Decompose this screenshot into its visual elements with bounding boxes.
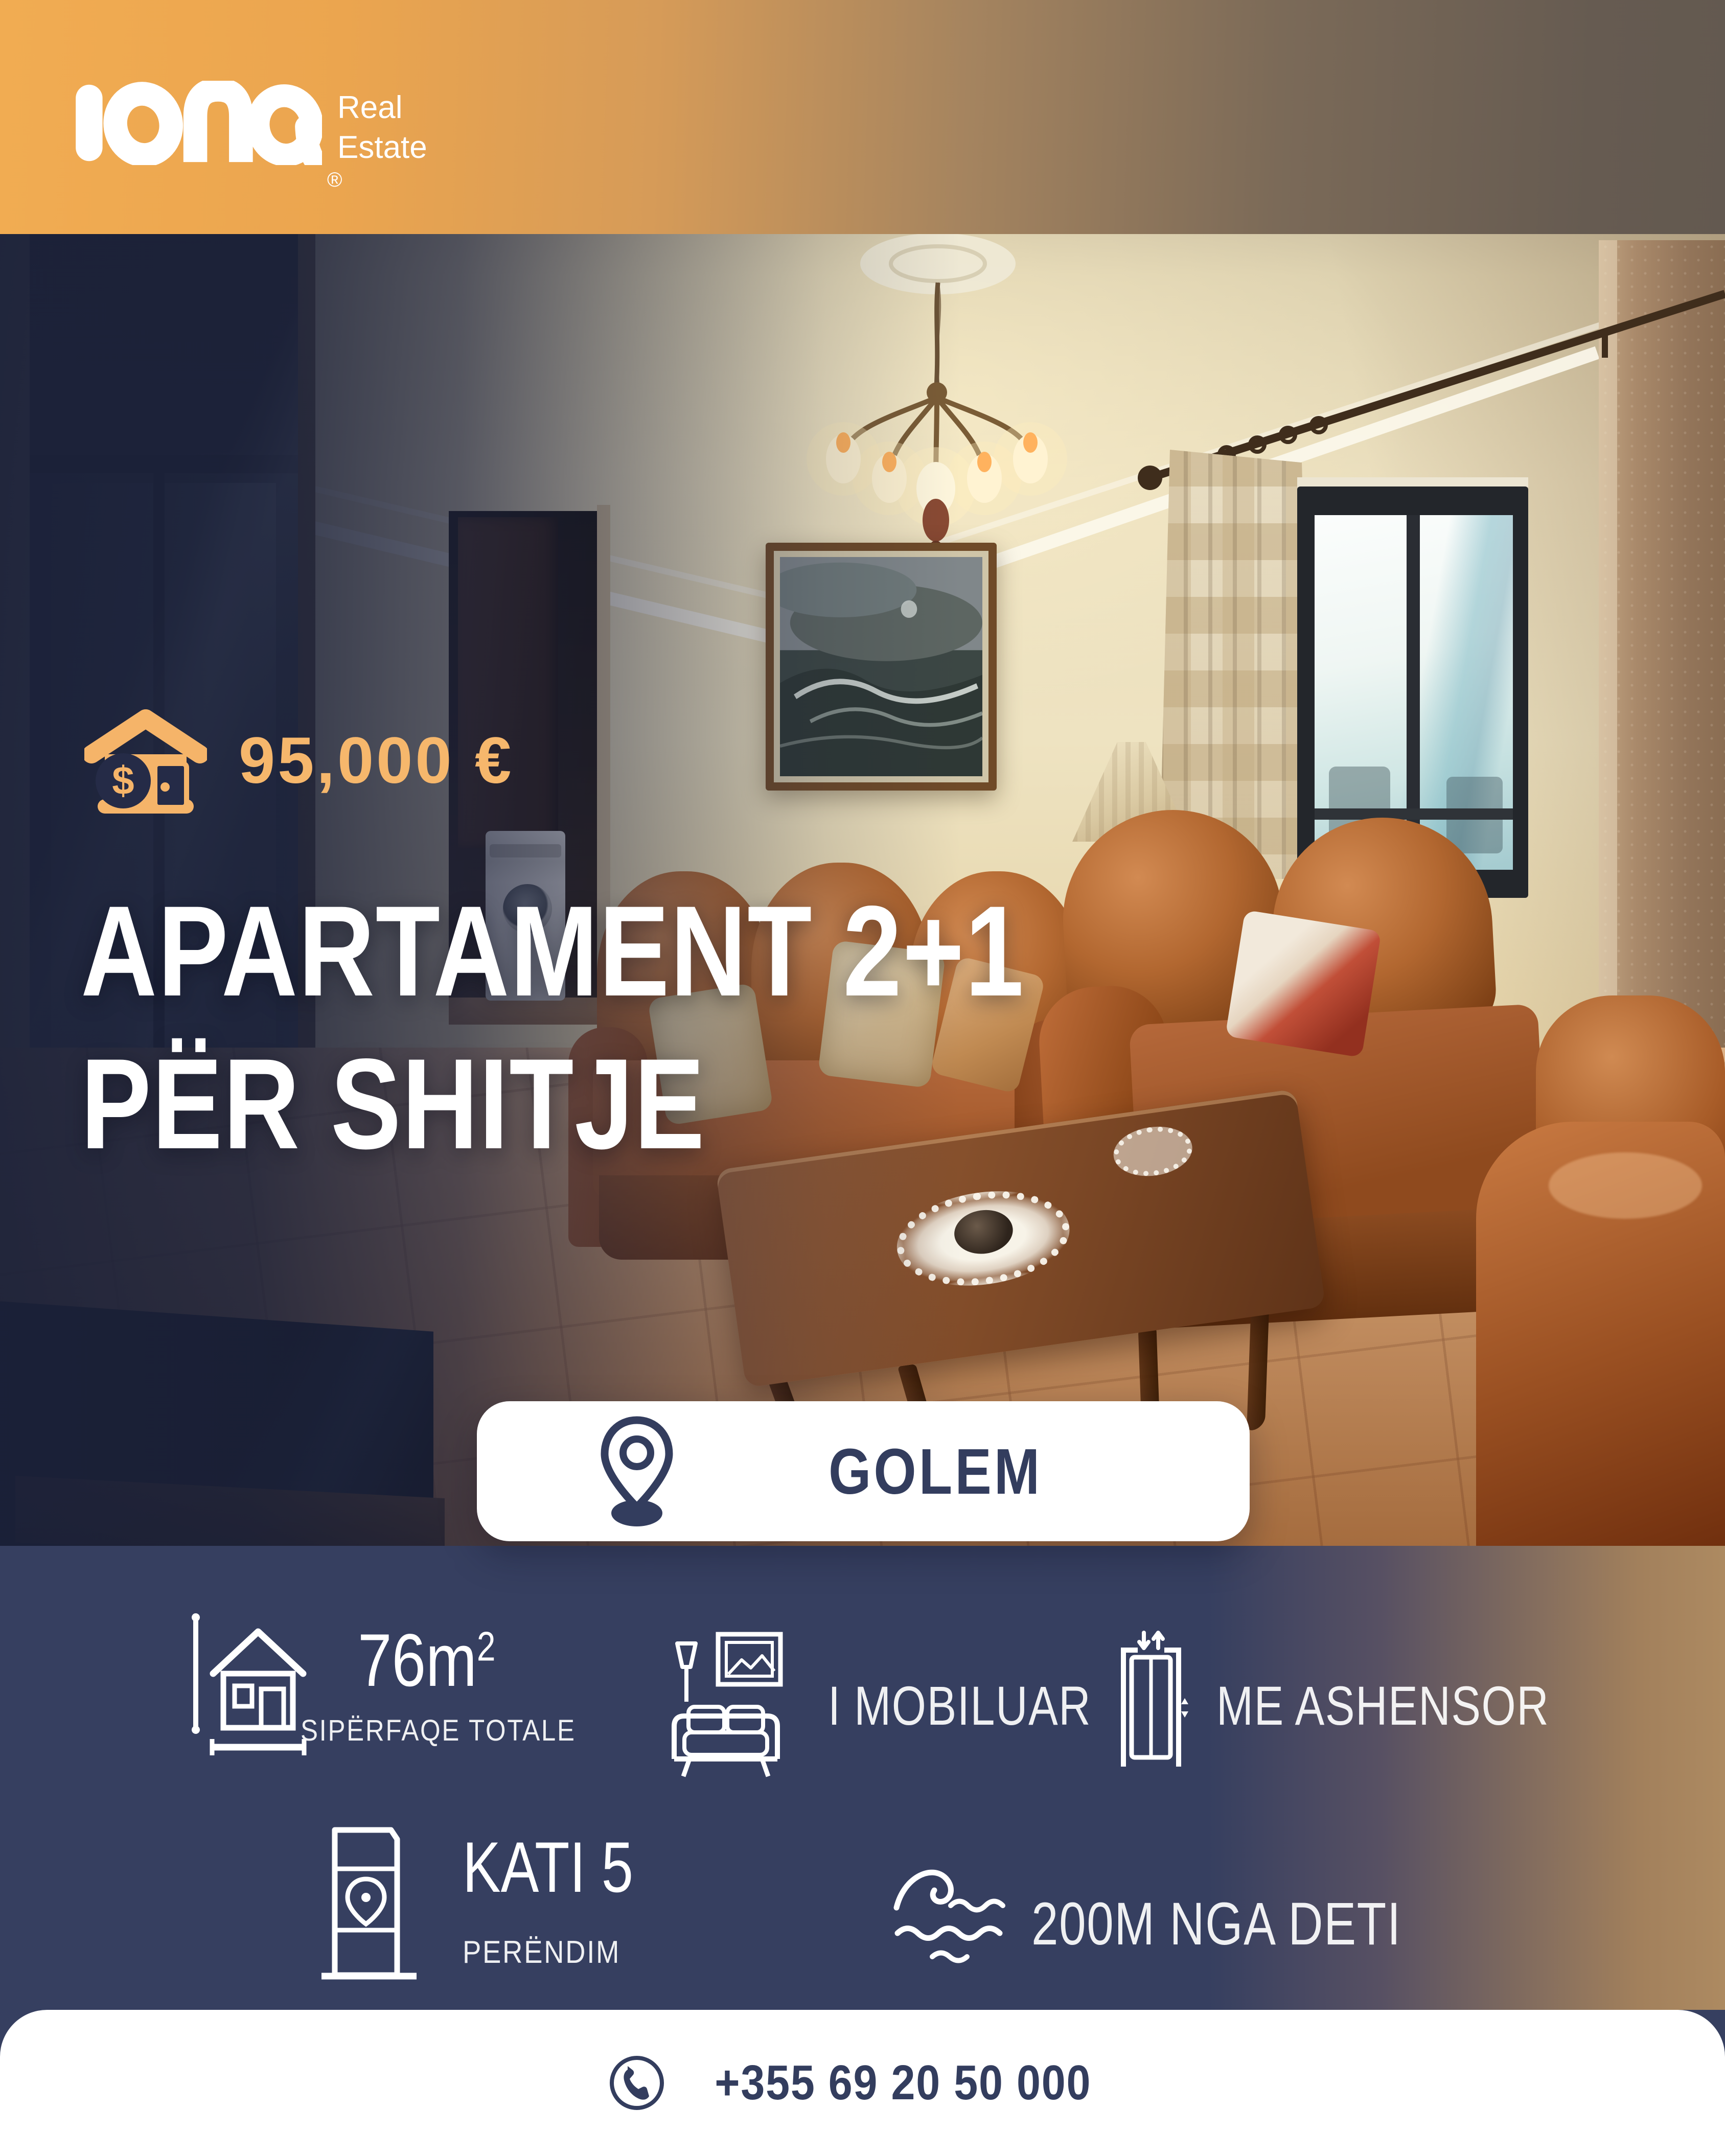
title-line-1: APARTAMENT 2+1 (81, 875, 1025, 1028)
furnished-sofa-icon (657, 1625, 795, 1783)
brand-logo: Real Estate ® (72, 81, 322, 168)
furnished-label: I MOBILUAR (828, 1674, 1091, 1737)
sea-waves-icon (889, 1857, 1017, 1977)
area-superscript: 2 (477, 1624, 496, 1670)
area-house-icon (187, 1611, 312, 1765)
title-line-2: PËR SHITJE (81, 1028, 1025, 1180)
floor-value: KATI 5 (463, 1826, 633, 1909)
red-accent-pillow (1225, 910, 1382, 1057)
iona-logo-icon (72, 81, 322, 165)
phone-number: +355 69 20 50 000 (715, 2055, 1091, 2111)
floor-orientation-label: PERËNDIM (463, 1934, 620, 1970)
listing-title: APARTAMENT 2+1 PËR SHITJE (81, 875, 1232, 1180)
house-price-icon: $ (84, 704, 207, 817)
area-number: 76m (358, 1618, 477, 1702)
features-panel: 76m2 SIPËRFAQE TOTALE I MOBILUAR ME ASHE (0, 1546, 1725, 2010)
real-estate-listing-poster: Real Estate ® $ 95,000 € APARTAMENT 2+1 … (0, 0, 1725, 2156)
window-rail (1315, 808, 1513, 820)
price-value: 95,000 € (239, 723, 514, 798)
elevator-label: ME ASHENSOR (1216, 1674, 1549, 1737)
leather-sheen (1549, 1152, 1702, 1219)
brand-tagline-line2: Estate (337, 128, 427, 168)
elevator-icon (1115, 1628, 1189, 1776)
building-floor-icon (314, 1822, 424, 1993)
sea-distance-label: 200M NGA DETI (1031, 1889, 1401, 1959)
dollar-glyph: $ (112, 758, 134, 803)
location-pin-icon (599, 1415, 675, 1527)
area-label: SIPËRFAQE TOTALE (301, 1713, 576, 1748)
contact-bar: +355 69 20 50 000 (0, 2010, 1725, 2156)
location-pill: GOLEM (477, 1401, 1250, 1541)
phone-icon (608, 2054, 665, 2112)
table-leg (1247, 1299, 1270, 1431)
area-value: 76m2 (358, 1617, 496, 1703)
price-row: $ 95,000 € (84, 704, 514, 817)
brand-tagline-line1: Real (337, 88, 427, 128)
brand-tagline: Real Estate (337, 88, 427, 168)
window-lintel (1297, 477, 1528, 488)
location-name: GOLEM (829, 1434, 1042, 1509)
registered-trademark: ® (327, 169, 342, 192)
